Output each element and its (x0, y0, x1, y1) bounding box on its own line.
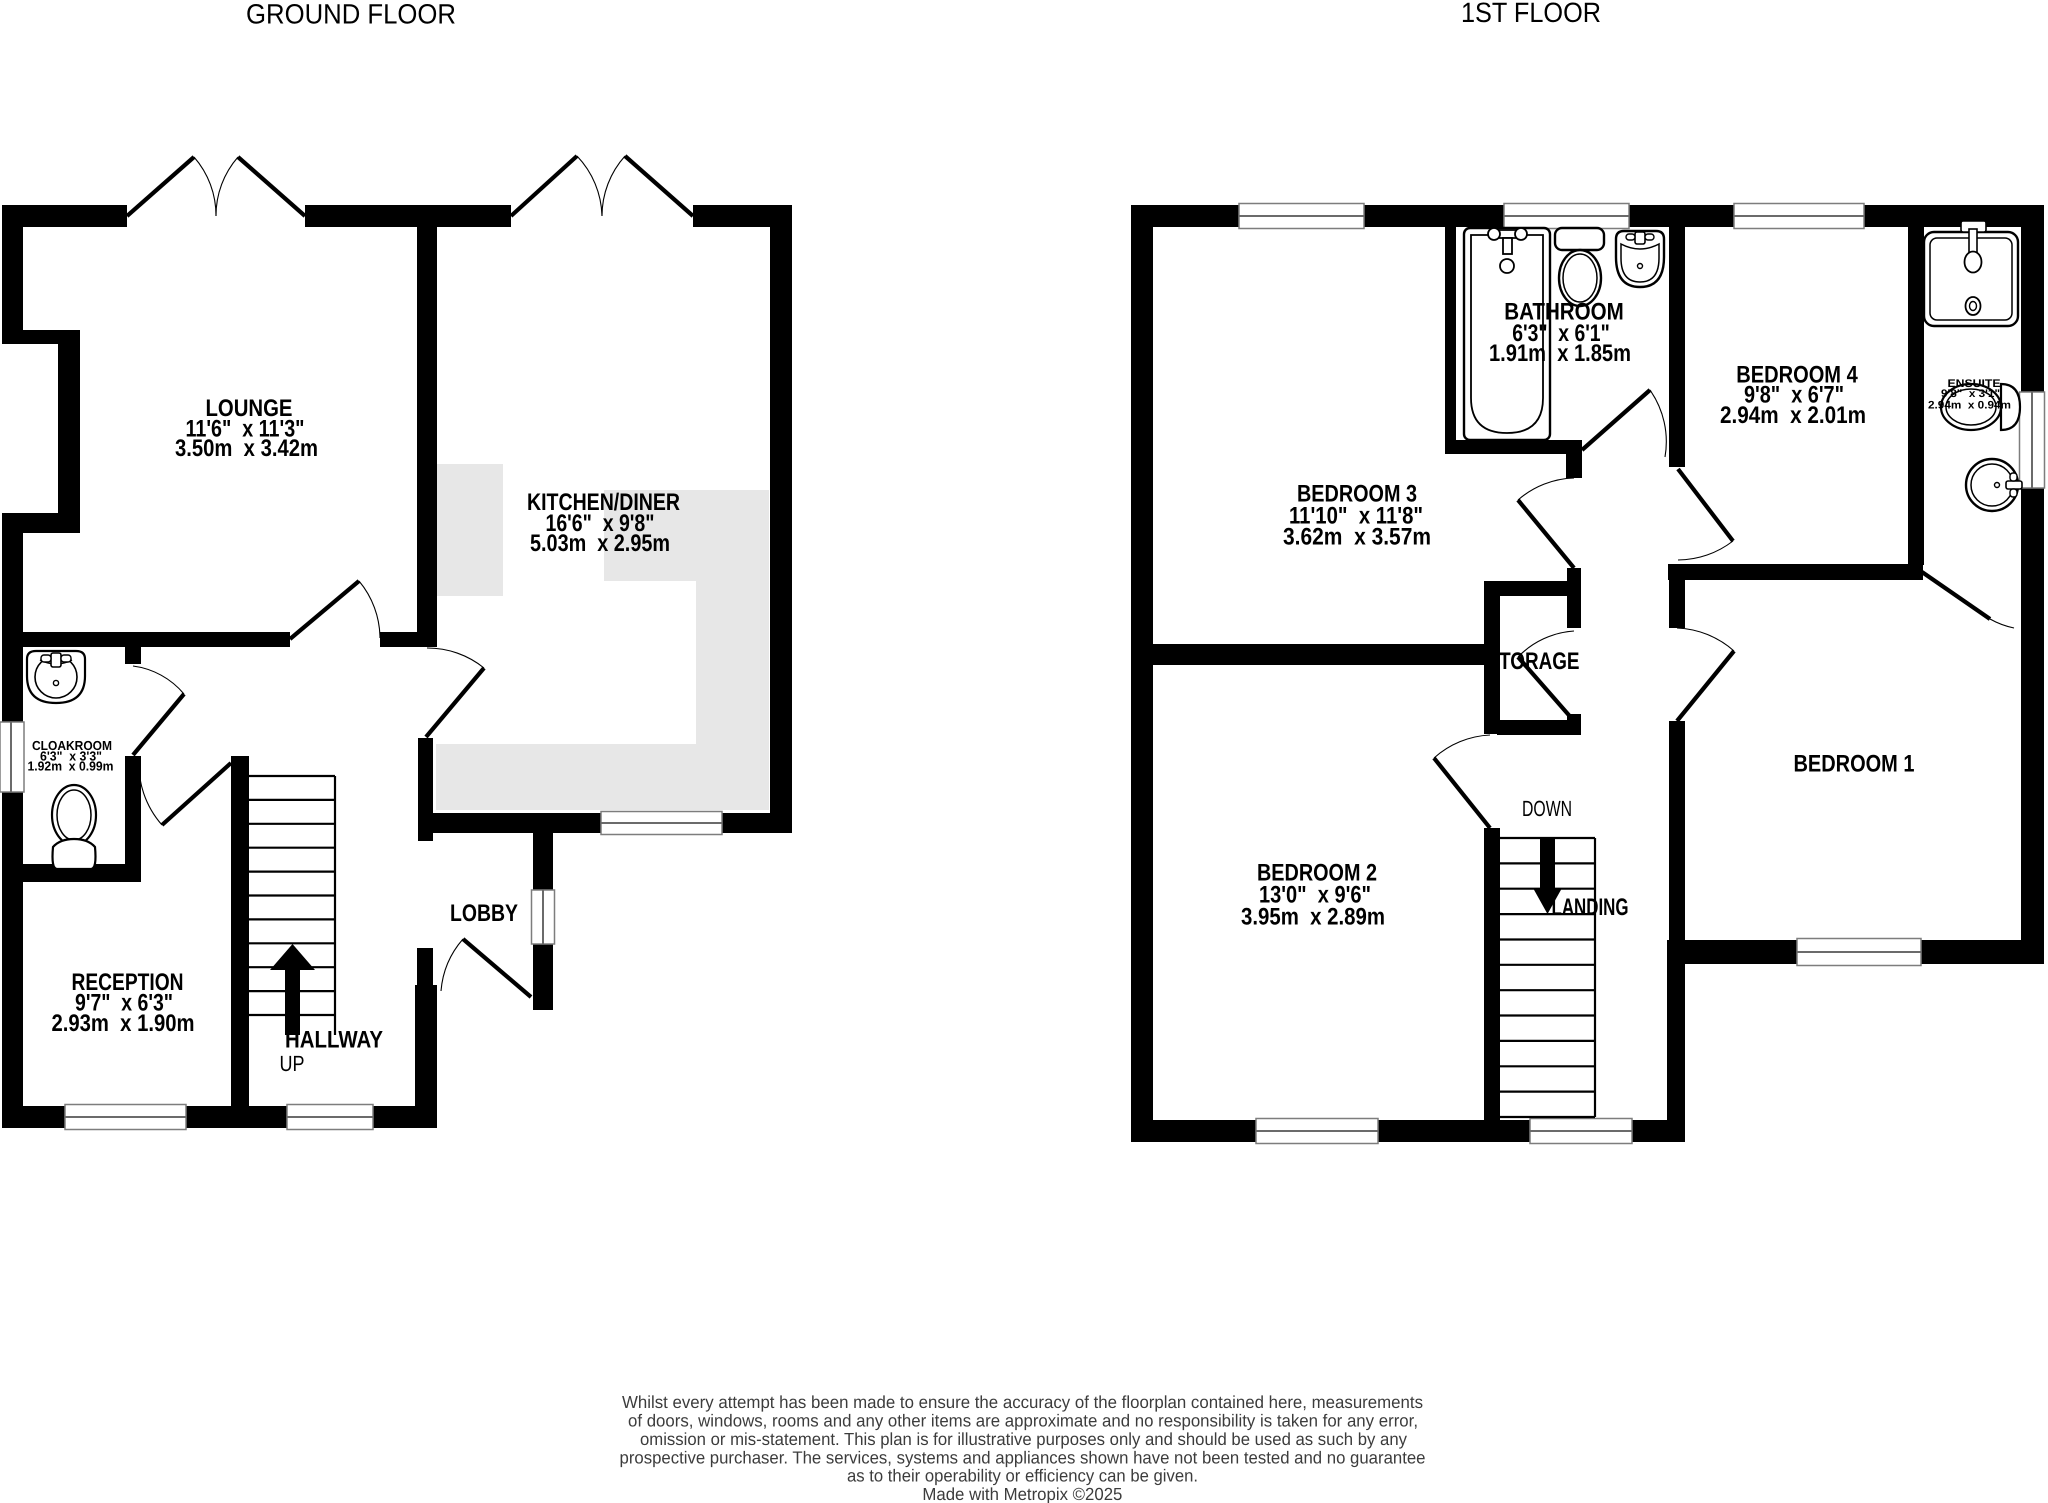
svg-text:1.91m x 1.85m: 1.91m x 1.85m (1489, 340, 1631, 367)
svg-text:HALLWAY: HALLWAY (285, 1027, 383, 1054)
svg-text:STORAGE: STORAGE (1487, 648, 1580, 675)
svg-text:Made with Metropix ©2025: Made with Metropix ©2025 (922, 1484, 1122, 1503)
svg-text:LOBBY: LOBBY (450, 900, 518, 927)
svg-text:9'8" x 3'1": 9'8" x 3'1" (1941, 388, 2000, 400)
svg-text:3.95m x 2.89m: 3.95m x 2.89m (1241, 904, 1385, 931)
svg-text:2.94m x 2.01m: 2.94m x 2.01m (1720, 402, 1866, 429)
svg-text:DOWN: DOWN (1522, 796, 1572, 821)
svg-text:2.94m x 0.94m: 2.94m x 0.94m (1928, 400, 2011, 412)
svg-text:Whilst every attempt has been: Whilst every attempt has been made to en… (622, 1392, 1423, 1412)
svg-text:2.93m x 1.90m: 2.93m x 1.90m (52, 1010, 195, 1037)
svg-text:3.62m x 3.57m: 3.62m x 3.57m (1283, 524, 1431, 551)
svg-text:LANDING: LANDING (1552, 894, 1629, 921)
svg-text:omission or mis-statement. Thi: omission or mis-statement. This plan is … (640, 1429, 1407, 1449)
svg-text:BEDROOM 1: BEDROOM 1 (1794, 751, 1915, 778)
svg-text:of doors, windows, rooms and a: of doors, windows, rooms and any other i… (628, 1411, 1418, 1431)
svg-text:1ST FLOOR: 1ST FLOOR (1461, 0, 1601, 28)
svg-text:1.92m x 0.99m: 1.92m x 0.99m (28, 759, 114, 774)
svg-text:UP: UP (280, 1051, 305, 1076)
svg-text:3.50m x 3.42m: 3.50m x 3.42m (175, 435, 318, 462)
svg-text:prospective purchaser. The ser: prospective purchaser. The services, sys… (620, 1447, 1426, 1467)
svg-text:5.03m x 2.95m: 5.03m x 2.95m (530, 530, 670, 557)
svg-text:GROUND FLOOR: GROUND FLOOR (246, 0, 456, 30)
svg-text:as to their operability or eff: as to their operability or efficiency ca… (847, 1466, 1198, 1486)
